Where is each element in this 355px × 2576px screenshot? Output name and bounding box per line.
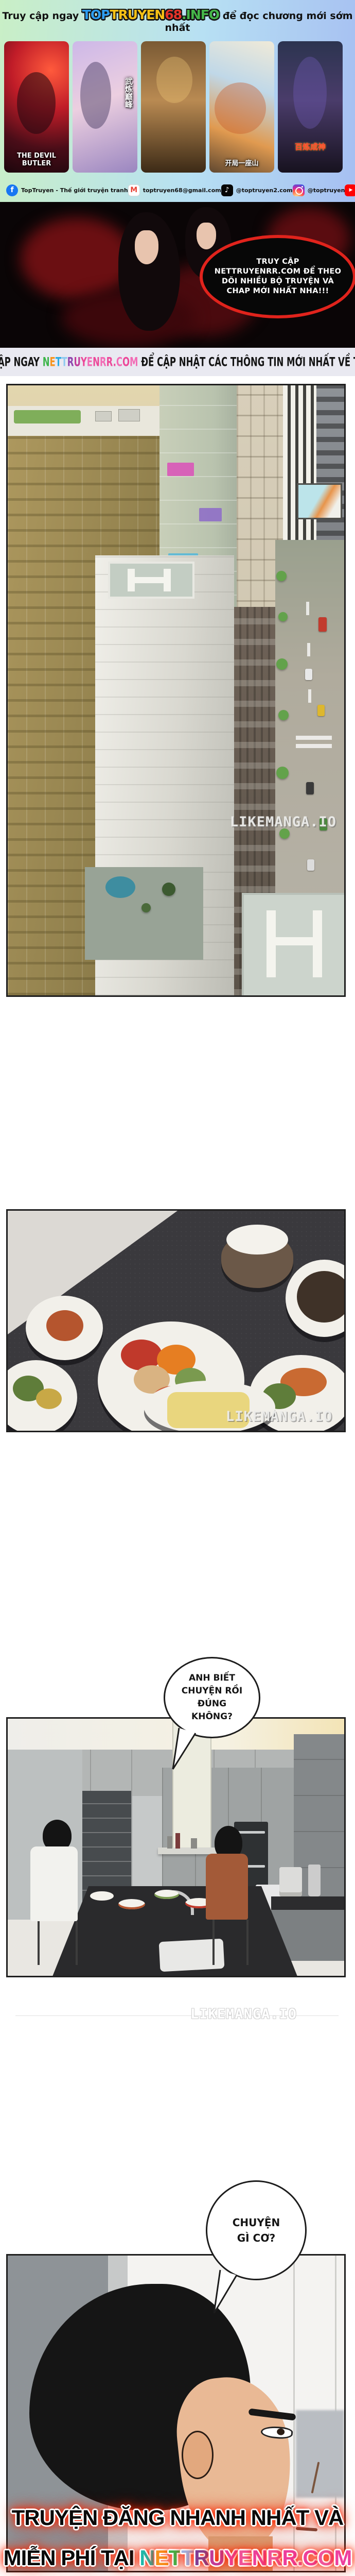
colored-letter: E — [87, 355, 93, 369]
cover-thumb-5[interactable]: 百炼成神 — [278, 41, 343, 173]
rice-bowl — [221, 1234, 293, 1288]
colored-letter: C — [116, 355, 122, 369]
helipad-mark — [276, 937, 313, 945]
colored-letter: E — [50, 355, 56, 369]
tree — [279, 828, 290, 839]
dark-promo-banner: TRUY CẬPNETTRUYENRR.COM ĐỂ THEODÕI NHIỀU… — [0, 202, 355, 348]
helipad-mark — [313, 910, 322, 977]
webtoon-reader-page: Truy cập ngay TOPTRUYEN68.INFO để đọc ch… — [0, 0, 355, 2576]
colored-letter: T — [61, 355, 67, 369]
promo-line-2-prefix: MIỄN PHÍ TẠI — [4, 2546, 140, 2570]
colored-letter: U — [209, 2546, 224, 2570]
colored-letter: O — [318, 2546, 334, 2570]
side-dish-plate — [26, 1296, 103, 1360]
info-bar-suffix: ĐỂ CẬP NHẬT CÁC THÔNG TIN MỚI NHẤT VỀ TR… — [138, 355, 355, 369]
side-dish — [46, 1310, 83, 1341]
colored-letter: R — [106, 355, 113, 369]
oven-handle — [237, 1831, 265, 1834]
colored-letter: E — [238, 2546, 252, 2570]
colored-letter: M — [130, 355, 138, 369]
promo-line-1: TRUYỆN ĐĂNG NHANH NHẤT VÀ — [0, 2498, 355, 2538]
terrace-plant — [141, 903, 151, 912]
colored-letter: N — [93, 355, 100, 369]
colored-letter: T — [181, 2546, 194, 2570]
speech-bubble-tail — [170, 1727, 199, 1771]
tiktok-label: @toptruyen2.com — [236, 187, 293, 194]
greens — [36, 1388, 62, 1409]
man-ear — [182, 2431, 214, 2479]
bubble-line: CHAP MỚI NHẤT NHA!!! — [227, 286, 329, 296]
speech-bubble-question-1: ANH BIẾT CHUYỆN RỒI ĐÚNG KHÔNG? — [164, 1657, 260, 1738]
bubble-line: ĐÚNG — [198, 1698, 226, 1710]
info-bar-prefix: TRUY CẬP NGAY — [0, 355, 43, 369]
lane-marking — [307, 643, 310, 656]
instagram-label: @toptruyen — [308, 187, 345, 194]
character-face — [135, 230, 158, 264]
colored-letter: TOP — [82, 7, 110, 22]
colored-letter: T — [169, 2546, 182, 2570]
tiktok-icon: ♪ — [221, 184, 233, 196]
cover-art-shape — [17, 72, 56, 134]
woman-shirt — [206, 1854, 248, 1920]
soup — [297, 1271, 346, 1323]
bubble-line: CHUYỆN RỒI — [182, 1685, 242, 1698]
colored-letter: N — [252, 2546, 267, 2570]
info-bar-text: TRUY CẬP NGAY NETTRUYENRR.COM ĐỂ CẬP NHẬ… — [0, 355, 355, 369]
colored-letter: T — [56, 355, 62, 369]
anti-piracy-overlay: TRUYỆN ĐĂNG NHANH NHẤT VÀ MIỄN PHÍ TẠI N… — [0, 2498, 355, 2576]
cover-thumbnails-row: THE DEVIL BUTLER 武炼巅峰 开局一座山 百炼成神 — [4, 41, 351, 173]
bubble-line: CHUYỆN — [233, 2215, 280, 2230]
cover-thumb-4[interactable]: 开局一座山 — [209, 41, 274, 173]
rooftop-garden — [14, 410, 81, 423]
bubble-line: TRUY CẬP — [256, 257, 299, 267]
info-bar: TRUY CẬP NGAY NETTRUYENRR.COM ĐỂ CẬP NHẬ… — [0, 348, 355, 376]
cover-title-5: 百炼成神 — [278, 141, 343, 152]
man-pupil — [277, 2428, 285, 2435]
comic-panel-dinner-table — [6, 1209, 346, 1432]
chair — [212, 1920, 248, 1965]
colored-letter: M — [334, 2546, 351, 2570]
social-youtube[interactable]: ▶ TopTruyen - Thế giới truyện tranh — [345, 184, 355, 196]
gmail-label: toptruyen68@gmail.com — [143, 187, 221, 194]
terrace-plant — [162, 883, 175, 896]
tree — [278, 710, 289, 720]
social-tiktok[interactable]: ♪ @toptruyen2.com — [221, 184, 293, 196]
promo-line-2: MIỄN PHÍ TẠI NETTRUYENRR.COM — [0, 2538, 355, 2576]
crosswalk — [296, 736, 332, 740]
colored-letter: N — [43, 355, 50, 369]
site-name-nettruyenrr: NETTRUYENRR.COM — [43, 355, 138, 369]
colored-letter: TRUYEN — [110, 7, 165, 22]
bottle — [175, 1833, 180, 1849]
helipad-mark — [135, 577, 164, 583]
bubble-line: ANH BIẾT — [189, 1672, 235, 1685]
youtube-icon: ▶ — [345, 184, 355, 196]
cover-thumb-2[interactable]: 武炼巅峰 — [73, 41, 137, 173]
site-logo-toptruyen68[interactable]: TOPTRUYEN68.INFO — [82, 10, 219, 22]
colored-letter: E — [155, 2546, 169, 2570]
dish-on-island — [118, 1899, 145, 1909]
speech-bubble-question-2: CHUYỆN GÌ CƠ? — [206, 2180, 307, 2280]
car — [306, 782, 314, 794]
lane-marking — [306, 602, 309, 615]
rooftop-terrace — [85, 867, 203, 960]
bubble-line: KHÔNG? — [191, 1710, 233, 1723]
espresso-machine — [279, 1867, 302, 1896]
red-glow-shape — [21, 217, 134, 300]
colored-letter: 68 — [165, 7, 182, 22]
social-facebook[interactable]: f TopTruyen - Thế giới truyện tranh — [6, 184, 128, 196]
colored-letter: R — [100, 355, 106, 369]
background-object — [296, 2410, 344, 2498]
colored-letter: R — [194, 2546, 209, 2570]
comic-panel-cityscape — [6, 384, 346, 997]
speech-bubble-tail — [210, 2268, 241, 2315]
bottle — [167, 1836, 172, 1849]
cover-title-2: 武炼巅峰 — [123, 77, 134, 108]
colored-letter: O — [122, 355, 130, 369]
taxi — [317, 705, 325, 716]
helipad-rooftop-bottom — [242, 893, 346, 997]
gmail-icon: M — [128, 184, 140, 196]
crosswalk — [296, 744, 332, 748]
colored-letter: Y — [224, 2546, 238, 2570]
social-gmail[interactable]: M toptruyen68@gmail.com — [128, 184, 221, 196]
cover-art-shape — [293, 57, 327, 129]
cover-thumb-3[interactable] — [141, 41, 206, 173]
blender — [308, 1865, 321, 1896]
social-instagram[interactable]: @toptruyen — [293, 184, 345, 196]
soup-bowl — [286, 1260, 346, 1337]
lane-marking — [308, 689, 311, 703]
watermark-likemanga-food: LIKEMANGA.IO — [226, 1409, 332, 1425]
helipad-mark — [164, 569, 171, 591]
helipad-mark — [128, 569, 135, 591]
facebook-label: TopTruyen - Thế giới truyện tranh — [21, 187, 128, 194]
cover-title-4: 开局一座山 — [209, 158, 274, 167]
greens-plate — [6, 1360, 77, 1432]
colored-letter: Y — [81, 355, 87, 369]
jar — [191, 1838, 197, 1849]
watermark-likemanga-middle: LIKEMANGA.IO — [190, 2006, 297, 2022]
egg-roll-plate — [144, 1381, 275, 1432]
dish-on-island — [90, 1891, 114, 1901]
cover-title-1: THE DEVIL BUTLER — [4, 152, 69, 167]
top-banner-prefix: Truy cập ngay — [2, 10, 79, 22]
colored-letter: .INFO — [182, 7, 219, 22]
rice — [226, 1225, 288, 1255]
facebook-icon: f — [6, 184, 18, 196]
bubble-line: DÕI NHIỀU BỘ TRUYỆN VÀ — [222, 277, 334, 286]
colored-letter: R — [67, 355, 74, 369]
colored-letter: R — [267, 2546, 282, 2570]
chair — [38, 1921, 78, 1965]
colored-letter: U — [74, 355, 80, 369]
tree — [278, 612, 288, 621]
top-ad-banner[interactable]: Truy cập ngay TOPTRUYEN68.INFO để đọc ch… — [0, 0, 355, 202]
rooftop-unit — [95, 411, 112, 421]
red-bus — [318, 617, 327, 632]
character-face — [197, 223, 216, 249]
instagram-icon — [293, 184, 305, 196]
bubble-line: NETTRUYENRR.COM ĐỂ THEO — [215, 267, 341, 277]
rooftop-unit — [118, 409, 140, 421]
colored-letter: . — [297, 2546, 303, 2570]
helipad-mark — [267, 910, 276, 977]
tree — [276, 571, 287, 581]
man-shirt — [30, 1846, 78, 1921]
site-name-nettruyenrr-overlay: NETTRUYENRR.COM — [139, 2546, 351, 2570]
social-links-row: f TopTruyen - Thế giới truyện tranh M to… — [0, 181, 355, 199]
cover-art-shape — [215, 82, 266, 134]
rooftop-helipad — [108, 562, 194, 599]
car — [307, 859, 314, 871]
tree — [276, 767, 289, 779]
bubble-line: GÌ CƠ? — [237, 2230, 276, 2246]
top-banner-text: Truy cập ngay TOPTRUYEN68.INFO để đọc ch… — [0, 7, 355, 33]
cover-art-shape — [156, 57, 192, 103]
promo-speech-bubble: TRUY CẬPNETTRUYENRR.COM ĐỂ THEODÕI NHIỀU… — [200, 235, 355, 318]
watermark-likemanga-city: LIKEMANGA.IO — [230, 814, 336, 830]
colored-letter: C — [303, 2546, 317, 2570]
dish-on-island — [154, 1890, 179, 1899]
colored-letter: N — [139, 2546, 154, 2570]
cover-art-shape — [80, 62, 111, 129]
lit-window — [167, 463, 194, 476]
lit-window — [199, 508, 222, 521]
right-counter — [271, 1896, 344, 1910]
car — [305, 669, 312, 680]
tree — [276, 658, 288, 670]
cover-thumb-1[interactable]: THE DEVIL BUTLER — [4, 41, 69, 173]
cat-billboard — [297, 483, 342, 519]
patio-umbrella — [105, 876, 135, 898]
colored-letter: R — [282, 2546, 297, 2570]
